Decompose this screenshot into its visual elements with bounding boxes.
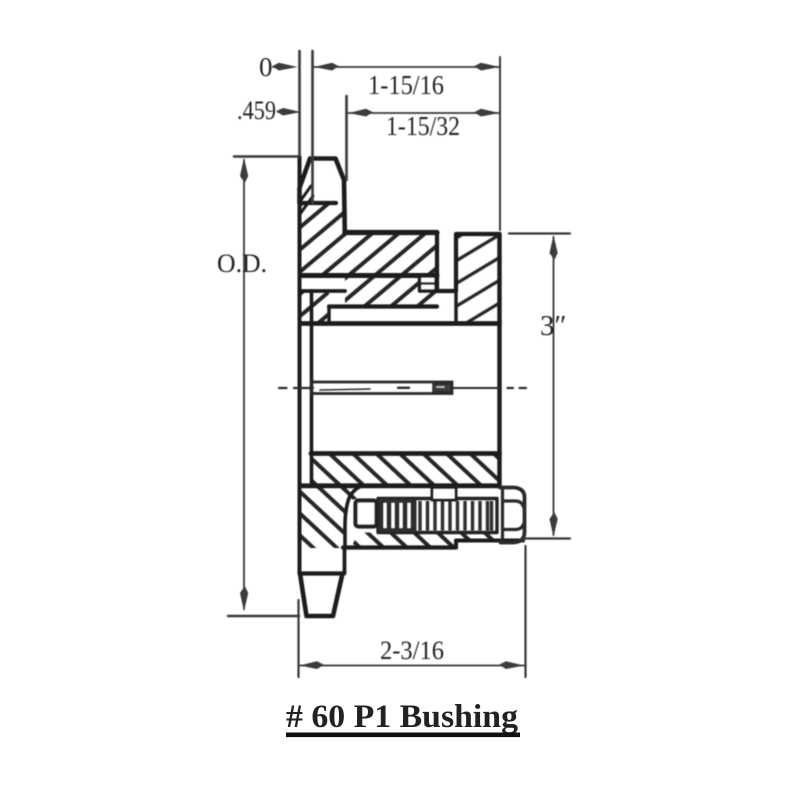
- svg-text:3″: 3″: [540, 310, 567, 342]
- svg-text:0: 0: [259, 52, 273, 82]
- svg-text:O.D.: O.D.: [217, 249, 267, 278]
- svg-text:1-15/16: 1-15/16: [368, 70, 444, 100]
- svg-text:.459: .459: [237, 96, 276, 125]
- svg-text:# 60 P1 Bushing: # 60 P1 Bushing: [286, 699, 519, 735]
- svg-text:1-15/32: 1-15/32: [386, 111, 460, 141]
- svg-text:2-3/16: 2-3/16: [380, 636, 444, 665]
